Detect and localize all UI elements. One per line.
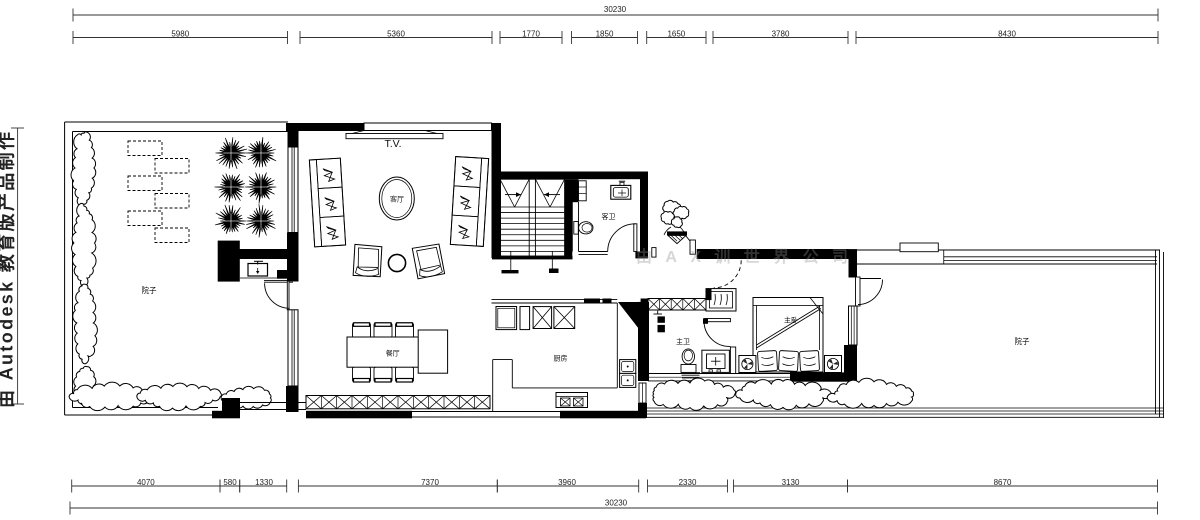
svg-text:3960: 3960	[558, 478, 576, 487]
svg-text:由AX训世界公司: 由AX训世界公司	[636, 247, 851, 266]
svg-text:3130: 3130	[782, 478, 800, 487]
svg-text:客厅: 客厅	[390, 195, 404, 204]
svg-text:3780: 3780	[772, 29, 790, 38]
svg-text:主卧: 主卧	[784, 316, 798, 325]
svg-text:5360: 5360	[387, 29, 405, 38]
svg-text:院子: 院子	[142, 285, 157, 295]
svg-text:7370: 7370	[421, 478, 439, 487]
svg-text:餐厅: 餐厅	[386, 349, 400, 358]
svg-text:5980: 5980	[171, 29, 189, 38]
svg-text:T.V.: T.V.	[384, 138, 401, 150]
svg-text:厨房: 厨房	[554, 354, 568, 363]
svg-text:30230: 30230	[605, 499, 628, 508]
svg-text:客卫: 客卫	[602, 212, 616, 221]
svg-text:4070: 4070	[137, 478, 155, 487]
svg-text:30230: 30230	[604, 5, 627, 14]
svg-text:8670: 8670	[994, 478, 1012, 487]
svg-text:1330: 1330	[255, 478, 273, 487]
svg-text:主卫: 主卫	[676, 337, 690, 346]
svg-text:院子: 院子	[1015, 336, 1031, 346]
svg-text:1850: 1850	[596, 29, 614, 38]
svg-text:8430: 8430	[998, 29, 1016, 38]
svg-text:1650: 1650	[667, 29, 685, 38]
svg-text:580: 580	[223, 478, 237, 487]
svg-text:2330: 2330	[679, 478, 697, 487]
svg-text:1770: 1770	[522, 29, 540, 38]
